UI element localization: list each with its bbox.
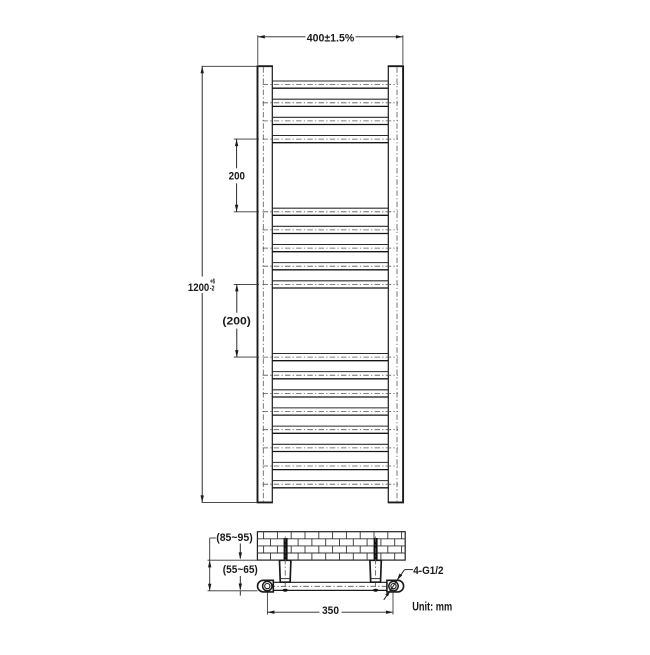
svg-text:350: 350 bbox=[322, 605, 339, 617]
svg-text:(200): (200) bbox=[222, 316, 251, 328]
svg-text:-2: -2 bbox=[210, 286, 215, 293]
svg-text:(85~95): (85~95) bbox=[216, 532, 253, 544]
svg-text:(55~65): (55~65) bbox=[223, 564, 258, 576]
svg-text:Unit: mm: Unit: mm bbox=[412, 602, 452, 614]
svg-text:+6: +6 bbox=[210, 279, 215, 286]
svg-text:4-G1/2: 4-G1/2 bbox=[413, 565, 443, 577]
svg-text:200: 200 bbox=[229, 171, 245, 183]
svg-text:400±1.5%: 400±1.5% bbox=[307, 32, 355, 44]
svg-text:1200: 1200 bbox=[188, 282, 209, 294]
